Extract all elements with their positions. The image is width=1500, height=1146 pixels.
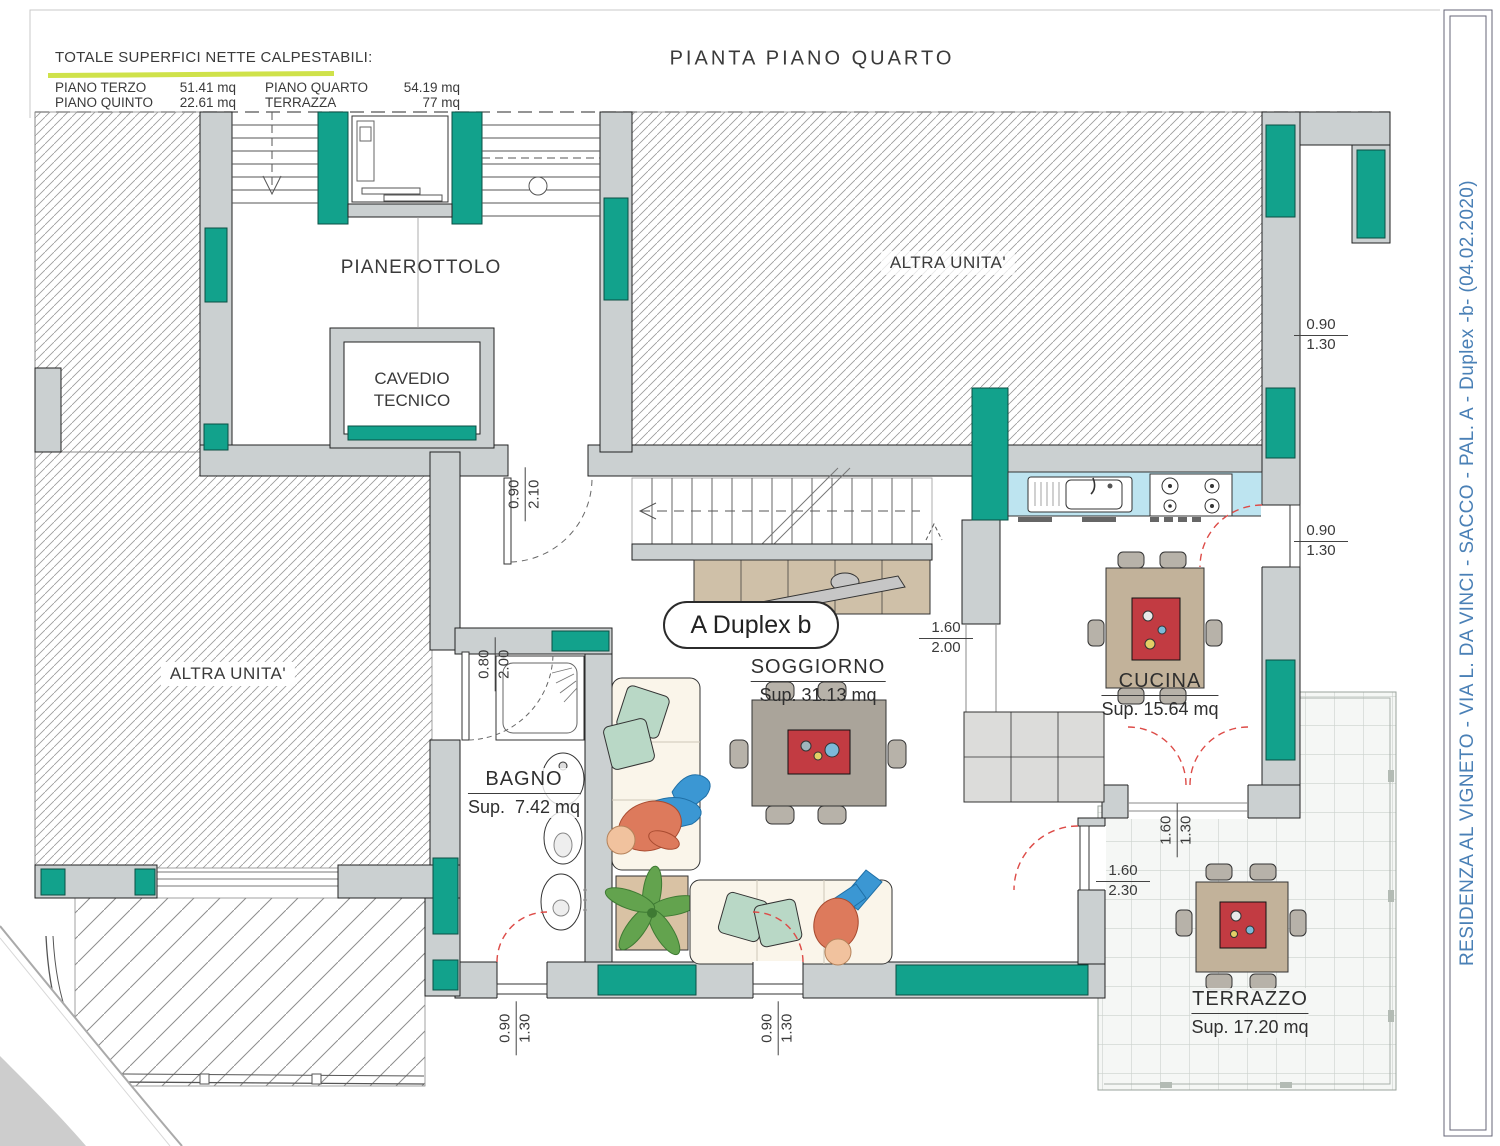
dim-bagno-door: 0.80 2.00 [477, 637, 514, 691]
room-label-bagno: BAGNO Sup. 7.42 mq [468, 768, 580, 818]
totals-title: TOTALE SUPERFICI NETTE CALPESTABILI: [55, 49, 373, 66]
scanned-floor-plan-page: TOTALE SUPERFICI NETTE CALPESTABILI: PIA… [0, 0, 1500, 1146]
title-block-text: RESIDENZA AL VIGNETO - VIA L. DA VINCI -… [1457, 180, 1479, 966]
totals-row-label: TERRAZZA [265, 95, 336, 110]
dim-balcony-door-center: 0.90 1.30 [760, 1001, 797, 1055]
elevator [318, 112, 482, 328]
totals-row-value: 77 mq [372, 95, 460, 110]
duplex-internal-stairs [632, 468, 942, 560]
room-label-soggiorno: SOGGIORNO Sup. 31.13 mq [751, 656, 886, 706]
dim-passage-cucina: 1.60 2.00 [919, 620, 973, 657]
totals-row-label: PIANO QUINTO [55, 95, 153, 110]
cucina-cabinets [964, 712, 1104, 802]
totals-row-label: PIANO TERZO [55, 80, 146, 95]
room-label-terrazzo: TERRAZZO Sup. 17.20 mq [1191, 988, 1308, 1038]
totals-row-value: 22.61 mq [148, 95, 236, 110]
dim-balcony-door-left: 0.90 1.30 [498, 1001, 535, 1055]
kitchen-counter [1008, 472, 1262, 522]
dim-entry-door: 0.90 2.10 [507, 467, 544, 521]
terrazzo-dining-table [1176, 864, 1306, 990]
room-label-altra-unita-top: ALTRA UNITA' [881, 251, 1015, 275]
room-label-pianerottolo: PIANEROTTOLO [341, 257, 502, 279]
room-label-cucina: CUCINA Sup. 15.64 mq [1101, 670, 1218, 720]
room-label-cavedio-tecnico: CAVEDIO TECNICO [374, 368, 451, 412]
totals-row-value: 51.41 mq [148, 80, 236, 95]
dim-window-right-mid: 0.90 1.30 [1294, 523, 1348, 560]
dim-terrace-window: 1.60 1.30 [1159, 803, 1196, 857]
dim-terrace-door: 1.60 2.30 [1096, 863, 1150, 900]
page-title: PIANTA PIANO QUARTO [670, 48, 955, 71]
floor-plan-drawing [0, 0, 1500, 1146]
totals-row-value: 54.19 mq [372, 80, 460, 95]
unit-badge: A Duplex b [663, 601, 839, 649]
plant [602, 865, 701, 959]
totals-row-label: PIANO QUARTO [265, 80, 368, 95]
room-label-altra-unita-left: ALTRA UNITA' [161, 662, 295, 686]
dim-window-right-top: 0.90 1.30 [1294, 317, 1348, 354]
